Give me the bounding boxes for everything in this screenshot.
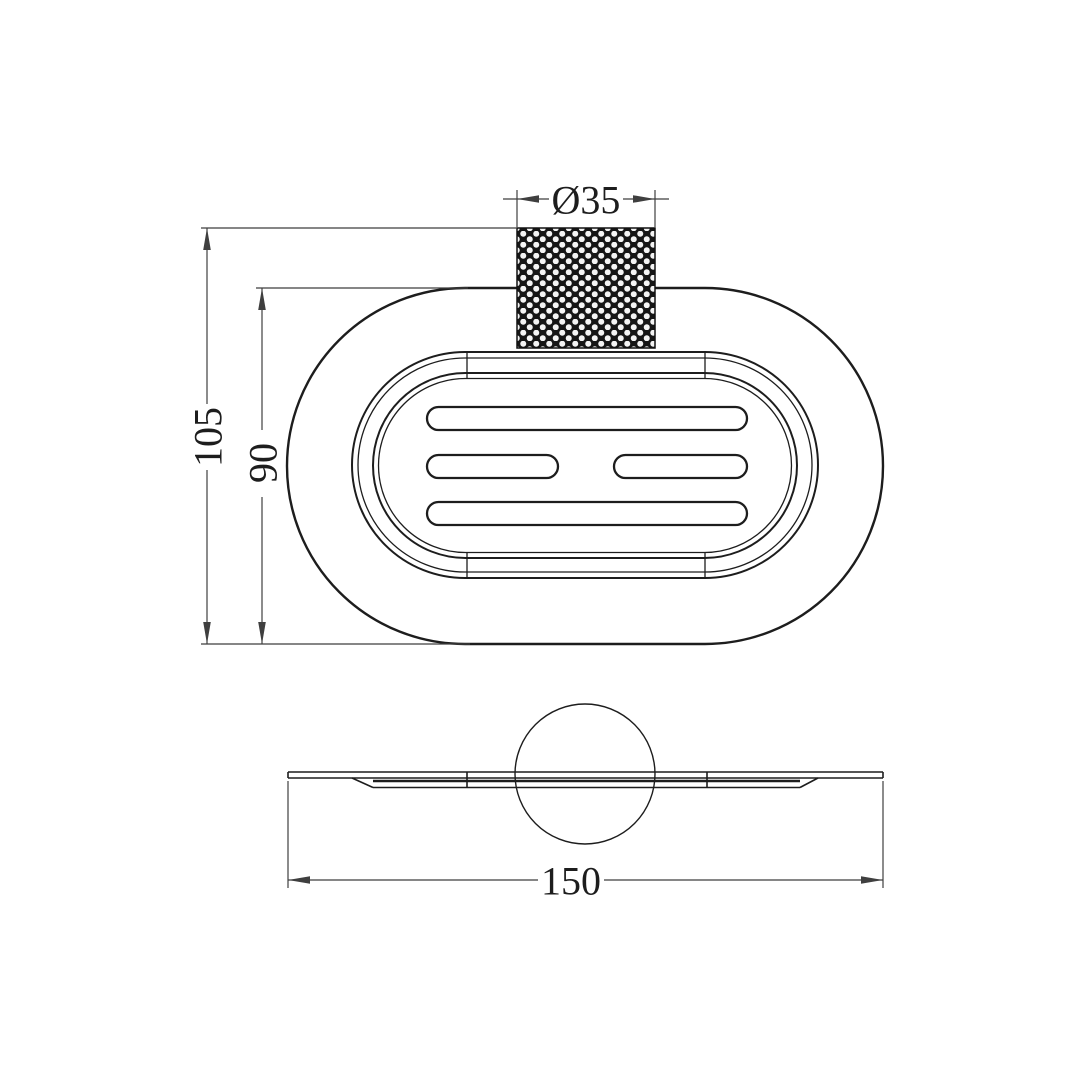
arrowhead-up <box>203 228 211 250</box>
knurled-mount-cylinder <box>517 228 655 348</box>
drain-slot-bottom <box>427 502 747 525</box>
dish-well-outer-line <box>373 373 797 558</box>
drain-slots <box>427 407 747 525</box>
side-view <box>288 704 883 844</box>
dim-dish-height: 90 <box>240 288 468 644</box>
dim-knob-diameter: Ø35 <box>503 177 669 227</box>
technical-drawing-canvas: Ø35 105 90 <box>0 0 1080 1080</box>
arrowhead-left <box>288 876 310 884</box>
dim-label-overall-height: 105 <box>185 407 230 467</box>
right-bevel <box>800 778 818 788</box>
left-bevel <box>352 778 373 788</box>
arrowhead-right <box>861 876 883 884</box>
top-view <box>287 228 883 644</box>
rim-tangent-edges <box>467 353 705 578</box>
dim-label-diameter: Ø35 <box>552 177 621 222</box>
arrowhead-down <box>203 622 211 644</box>
plate-profile <box>288 772 883 788</box>
arrowhead-right <box>633 195 655 203</box>
drain-slot-middle-right <box>614 455 747 478</box>
dim-overall-height: 105 <box>185 228 517 644</box>
arrowhead-up <box>258 288 266 310</box>
mount-ring-circle <box>515 704 655 844</box>
dim-overall-width: 150 <box>288 781 883 903</box>
soap-dish-drawing: Ø35 105 90 <box>0 0 1080 1080</box>
drain-slot-middle-left <box>427 455 558 478</box>
dim-label-overall-width: 150 <box>541 858 601 903</box>
arrowhead-left <box>517 195 539 203</box>
drain-slot-top <box>427 407 747 430</box>
dish-rim-outer-line <box>352 352 818 578</box>
arrowhead-down <box>258 622 266 644</box>
dish-well-inner-line <box>379 379 792 553</box>
dim-label-dish-height: 90 <box>240 443 285 483</box>
